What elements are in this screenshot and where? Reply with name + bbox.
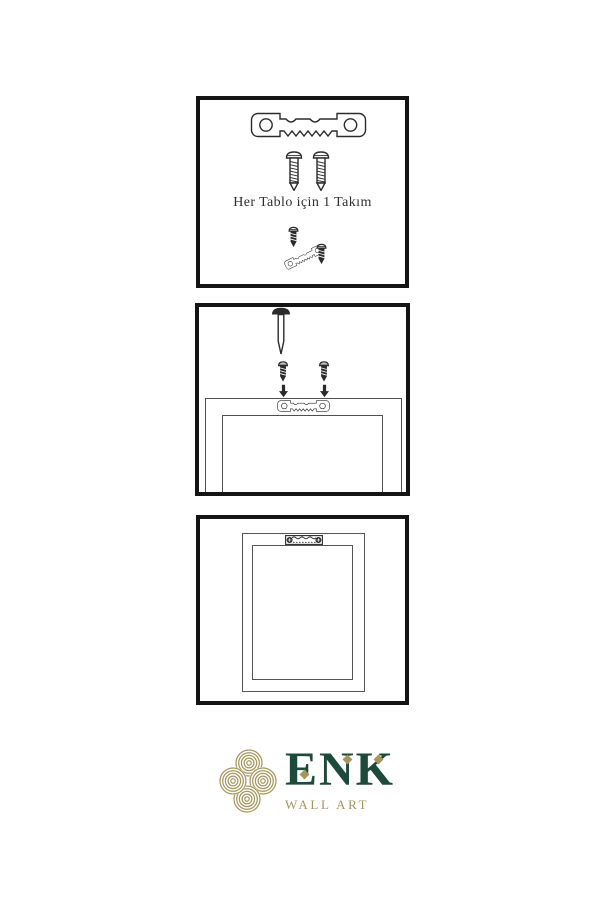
sawtooth-hanger-icon — [250, 112, 367, 138]
screw-icon — [312, 151, 330, 191]
instruction-sheet: { "colors": { "background": "#ffffff", "… — [0, 0, 600, 900]
screw-icon — [318, 361, 330, 383]
arrow-down-icon — [320, 384, 329, 398]
panel-mounted-frame — [196, 515, 409, 705]
kit-caption: Her Tablo için 1 Takım — [200, 195, 405, 211]
sawtooth-hanger-icon — [277, 400, 330, 412]
knot-logo-icon — [218, 748, 278, 814]
tilted-hanger-with-screws-icon — [283, 224, 331, 276]
panel-hardware-kit: Her Tablo için 1 Takım — [196, 96, 409, 288]
brand-subtitle: WALL ART — [285, 797, 381, 813]
frame-back-inner-edge — [252, 545, 353, 680]
screw-icon — [288, 226, 299, 249]
panel-installation-step — [195, 303, 410, 496]
screw-icon — [316, 243, 327, 266]
arrow-down-icon — [279, 384, 288, 398]
frame-back-inner-edge — [222, 415, 383, 496]
screw-icon — [277, 361, 289, 383]
installed-sawtooth-hanger-icon — [285, 535, 323, 545]
brand-name: ENK — [285, 746, 395, 794]
nail-icon — [271, 307, 291, 355]
screw-icon — [285, 151, 303, 191]
